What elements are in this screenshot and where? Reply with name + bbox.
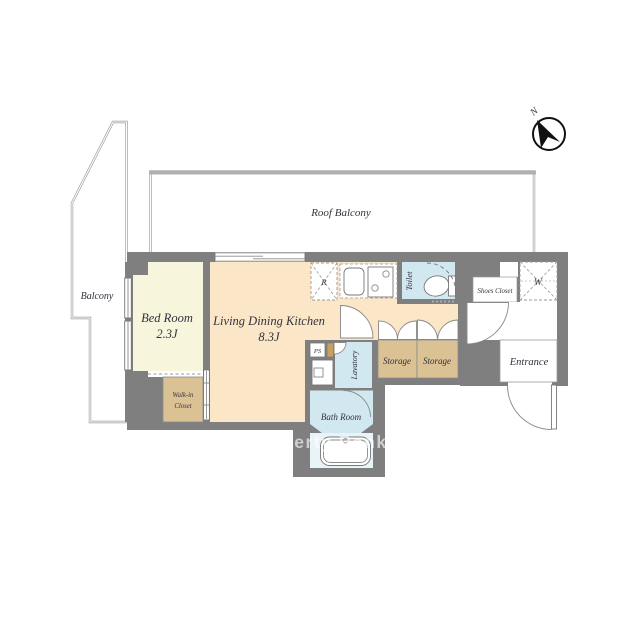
meter-box xyxy=(327,343,334,357)
bath-room: Bath Room xyxy=(310,391,373,469)
lavatory-label: Lavatory xyxy=(350,350,359,380)
roof-balcony: Roof Balcony xyxy=(149,172,536,259)
bed-room-floor-notch xyxy=(148,262,203,275)
walk-in-closet-label1: Walk-in xyxy=(173,392,194,399)
toilet-room: Toilet xyxy=(402,262,456,302)
entrance-door-arc xyxy=(508,386,552,430)
shoes-closet-upper xyxy=(500,262,518,277)
ldk-floor-lower xyxy=(210,338,305,422)
entrance-door-leaf xyxy=(552,385,557,429)
w-closet-label: W xyxy=(534,278,543,288)
walk-in-closet: Walk-in Closet xyxy=(163,377,203,422)
toilet-tank-icon xyxy=(449,276,456,296)
floorplan-canvas: Roof Balcony Balcony Bed Room 2.3J Walk-… xyxy=(0,0,640,640)
roof-balcony-label: Roof Balcony xyxy=(310,207,371,219)
balcony-railing xyxy=(72,122,127,422)
kitchen-stove-icon xyxy=(368,267,393,297)
shoes-closet-label: Shoes Closet xyxy=(478,288,514,295)
bath-room-label: Bath Room xyxy=(321,412,362,422)
storage-left-label: Storage xyxy=(383,356,411,366)
watermark: Property Bank xyxy=(248,432,387,452)
entrance-label: Entrance xyxy=(509,357,549,368)
balcony-label: Balcony xyxy=(81,291,114,302)
kitchen-sink-icon xyxy=(344,268,364,295)
bed-room-size: 2.3J xyxy=(156,327,179,341)
washbasin-icon xyxy=(312,360,333,385)
compass: N xyxy=(528,105,565,150)
bed-room-label: Bed Room xyxy=(141,311,193,325)
storage-right-label: Storage xyxy=(423,356,451,366)
ldk-label: Living Dining Kitchen xyxy=(212,314,325,328)
pipe-space-label: PS xyxy=(313,348,322,355)
ldk-window-icon xyxy=(215,253,305,261)
floorplan-svg: Roof Balcony Balcony Bed Room 2.3J Walk-… xyxy=(0,0,640,640)
lavatory-area: Lavatory PS xyxy=(310,342,372,388)
refrigerator-label: R xyxy=(320,277,327,287)
compass-north-label: N xyxy=(528,105,542,119)
walk-in-closet-floor xyxy=(163,377,203,422)
walk-in-closet-label2: Closet xyxy=(174,403,192,410)
toilet-label: Toilet xyxy=(404,271,414,291)
ldk-size: 8.3J xyxy=(258,330,281,344)
side-balcony: Balcony xyxy=(72,122,127,422)
storage-area: Storage Storage xyxy=(378,320,458,378)
